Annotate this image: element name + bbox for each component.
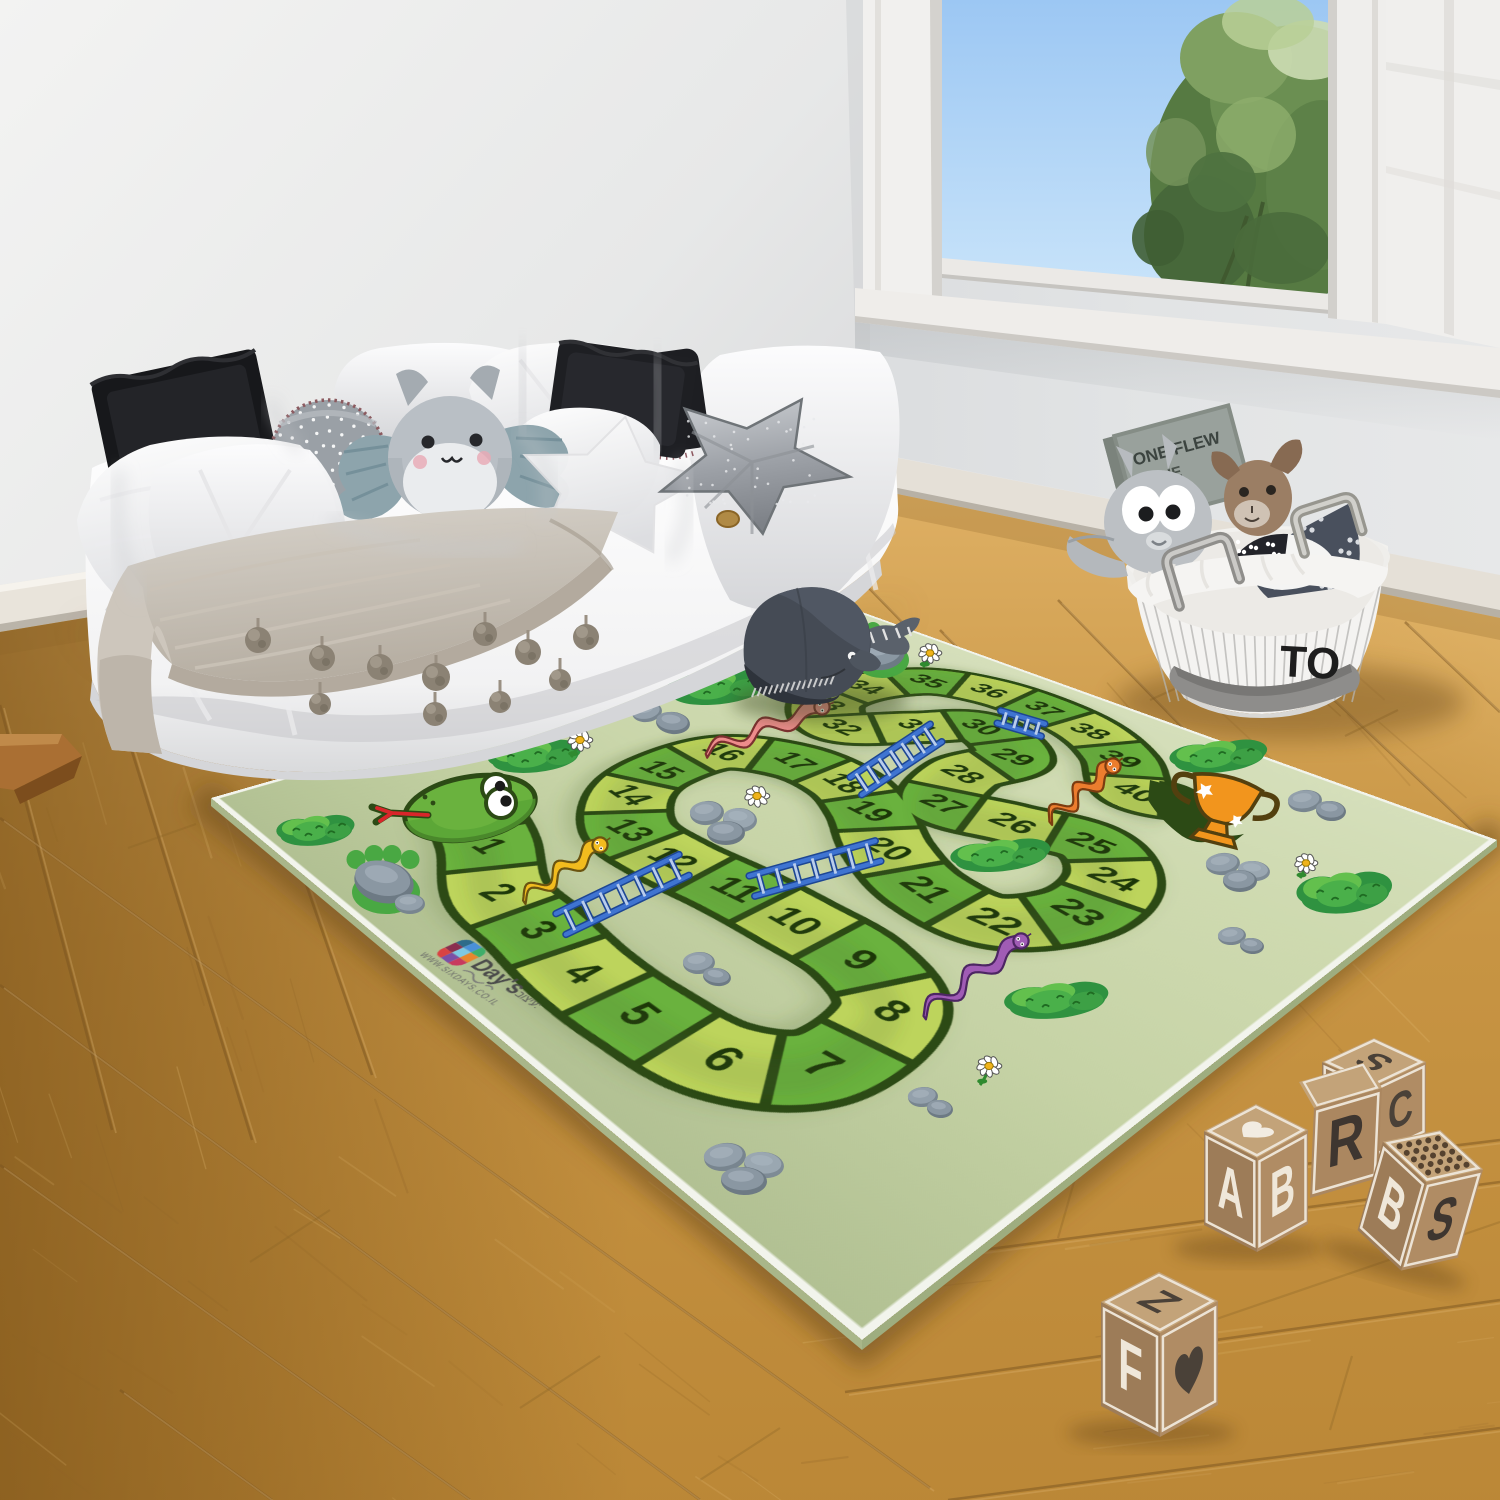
svg-text:TO: TO xyxy=(1279,637,1342,689)
svg-text:F: F xyxy=(1118,1322,1143,1415)
svg-text:B: B xyxy=(1270,1148,1295,1233)
svg-text:A: A xyxy=(1217,1149,1243,1233)
svg-text:R: R xyxy=(1326,1096,1366,1182)
